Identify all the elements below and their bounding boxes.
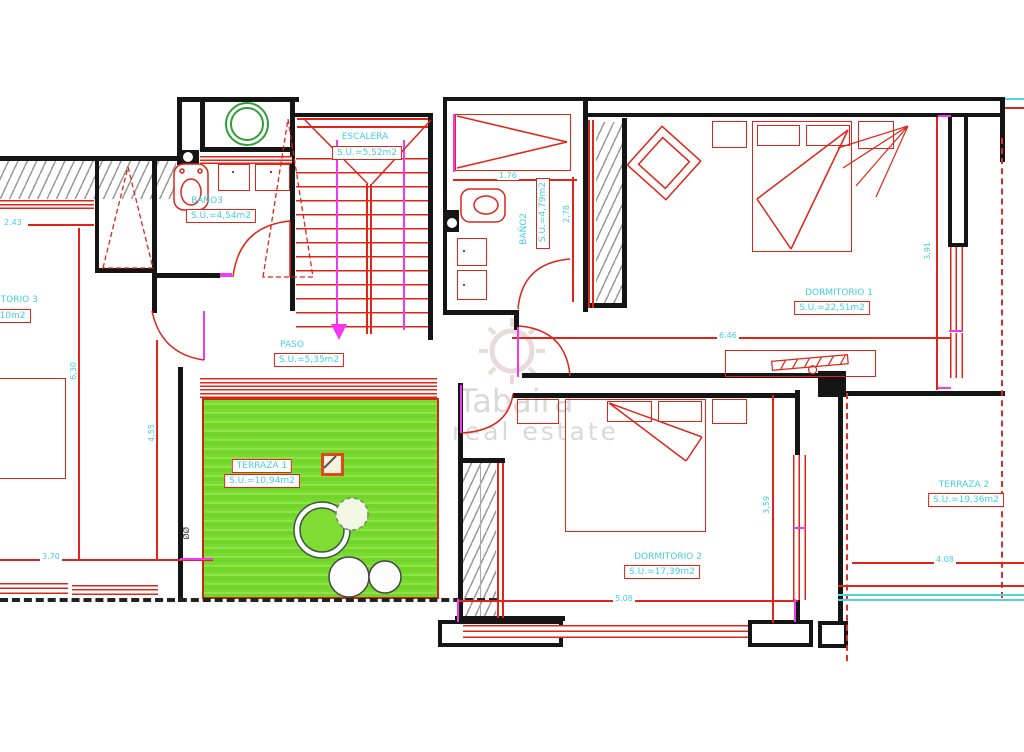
dim-label: 5.08 [613,594,635,603]
dim-label: 3,59 [762,494,771,516]
dorm2-area-box: S.U.=17,39m2 [624,565,700,579]
bano3-area-box: S.U.=4,54m2 [186,209,256,223]
diameter-marks: ØØ [182,525,191,542]
dim-label: 4,55 [147,422,156,444]
dim-label: 1.76 [497,171,519,180]
shower-door-lines [457,116,567,168]
dorm3-area-box: 1,10m2 [0,309,31,323]
plan-linework [0,0,1024,752]
dim-label: 6,30 [69,360,78,382]
dorm3-label: DORMITORIO 3 [0,296,38,306]
dim-label: 2,78 [562,203,571,225]
bano2-area-box: S.U.=4,79m2 [536,178,550,249]
paso-area-box: S.U.=5,35m2 [274,353,344,367]
corner-wardrobe-fan [838,126,908,197]
stair-down-arrow [331,324,347,340]
bano3-label: BAÑO3 [191,197,223,207]
terraza2-area-box: S.U.=19,36m2 [928,493,1004,507]
dorm1-label: DORMITORIO 1 [805,289,873,299]
bano2-area-text: S.U.=4,79m2 [538,182,548,242]
bano2-label: BAÑO2 [520,213,530,245]
dorm2-label: DORMITORIO 2 [634,553,702,563]
bed2-fold-lines [609,403,702,461]
terraza2-label: TERRAZA 2 [939,481,989,491]
bed1-fold-lines [757,130,848,249]
cistern-button [447,218,457,228]
escalera-area-box: S.U.=5,52m2 [332,146,402,160]
dim-label: 3,91 [923,240,932,262]
terraza1-area-box: S.U.=10,94m2 [224,474,300,488]
cistern-button [183,152,193,162]
terraza1-planter-circles [294,498,401,597]
dim-label: 3.70 [40,552,62,561]
dorm1-area-box: S.U.=22,51m2 [794,301,870,315]
tv-remote-bar [772,355,849,378]
drain-slash [324,456,336,468]
armchair-rotated [627,126,700,199]
terraza1-label-box: TERRAZA 1 [232,459,292,473]
floor-plan: Tabaira real estate [0,0,1024,752]
dim-label: 6.46 [717,331,739,340]
dim-label: 2.43 [2,218,24,227]
washing-machine-icon [226,103,268,145]
toilet-icon-bano2 [461,189,505,222]
door-arcs [152,221,570,433]
paso-label: PASO [280,341,304,351]
escalera-label: ESCALERA [342,133,389,143]
dim-label: 4.08 [934,555,956,564]
